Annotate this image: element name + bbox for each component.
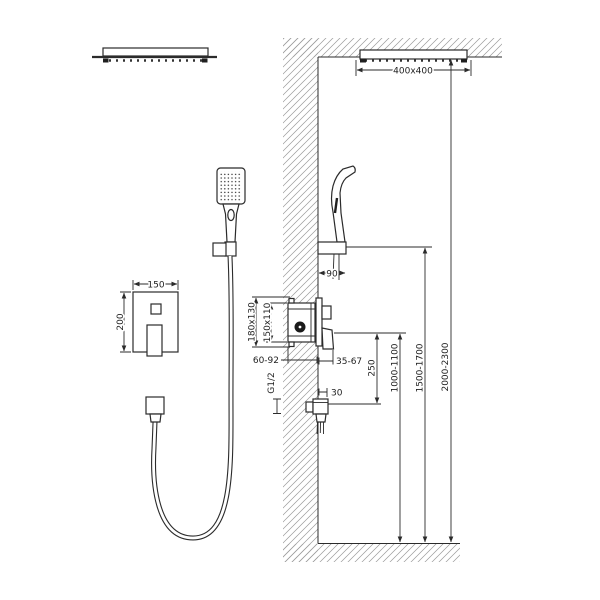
floor-hatch bbox=[283, 544, 460, 562]
dim-heights: 250 1000-1100 1500-1700 2000-2300 bbox=[368, 60, 452, 542]
outlet-elbow-body bbox=[313, 399, 328, 414]
spray-face bbox=[221, 172, 242, 201]
nozzle-end-cap bbox=[461, 59, 467, 63]
dim-label-60-92: 60-92 bbox=[253, 356, 279, 366]
mixer-valve-section bbox=[288, 298, 334, 349]
dim-ceiling-head-size: 400x400 bbox=[356, 60, 471, 77]
dim-label-30: 30 bbox=[331, 389, 343, 399]
hose-connector-nut bbox=[150, 414, 161, 422]
nozzle-end-cap bbox=[360, 59, 366, 63]
nozzle-end-cap bbox=[202, 59, 208, 63]
mixer-handle-side bbox=[322, 328, 334, 349]
installation-diagram: 400x400 90 180x130 150x110 60-92 35-67 bbox=[0, 0, 600, 600]
dim-label-1000-1100: 1000-1100 bbox=[391, 343, 401, 392]
ceiling-shower-head-side-view bbox=[92, 48, 217, 63]
dim-label-150: 150 bbox=[147, 281, 164, 291]
dim-label-1500-1700: 1500-1700 bbox=[416, 343, 426, 392]
handle-lower bbox=[225, 242, 236, 256]
mode-button bbox=[228, 210, 234, 221]
dim-label-G12: G1/2 bbox=[267, 372, 277, 393]
diverter-button bbox=[151, 304, 161, 314]
nozzle-end-cap bbox=[103, 59, 109, 63]
dim-label-250: 250 bbox=[368, 359, 378, 376]
diagram-canvas: 400x400 90 180x130 150x110 60-92 35-67 bbox=[0, 0, 600, 600]
wall-hatch bbox=[283, 38, 318, 562]
trim-plate-side bbox=[316, 298, 322, 346]
outlet-pipe-in-wall bbox=[306, 402, 313, 412]
head-body bbox=[103, 48, 208, 56]
dim-label-2000-2300: 2000-2300 bbox=[441, 342, 451, 391]
dim-label-35-67: 35-67 bbox=[336, 357, 362, 367]
diverter-knob-side bbox=[322, 306, 331, 319]
mixer-plate-front-view: 150 200 bbox=[116, 280, 178, 356]
outlet-hose-nut bbox=[316, 414, 326, 422]
mixer-handle-front bbox=[147, 325, 162, 356]
dim-label-200: 200 bbox=[116, 313, 126, 330]
dim-label-150x110: 150x110 bbox=[263, 302, 273, 342]
hose-wall-connector bbox=[146, 397, 164, 414]
dim-label-400x400: 400x400 bbox=[393, 67, 433, 77]
rough-in-box-tab bbox=[289, 299, 294, 304]
rough-in-box-tab bbox=[289, 342, 294, 347]
dim-label-180x130: 180x130 bbox=[248, 302, 258, 342]
hand-shower-side-view: 90 bbox=[318, 166, 355, 280]
holder-bracket-front bbox=[213, 243, 226, 256]
hand-shower-front-view bbox=[213, 168, 245, 256]
valve-cartridge-center bbox=[299, 326, 302, 329]
hand-shower-holder bbox=[318, 242, 346, 254]
dim-label-90: 90 bbox=[326, 270, 338, 280]
ceiling-shower-head-body bbox=[360, 50, 467, 59]
